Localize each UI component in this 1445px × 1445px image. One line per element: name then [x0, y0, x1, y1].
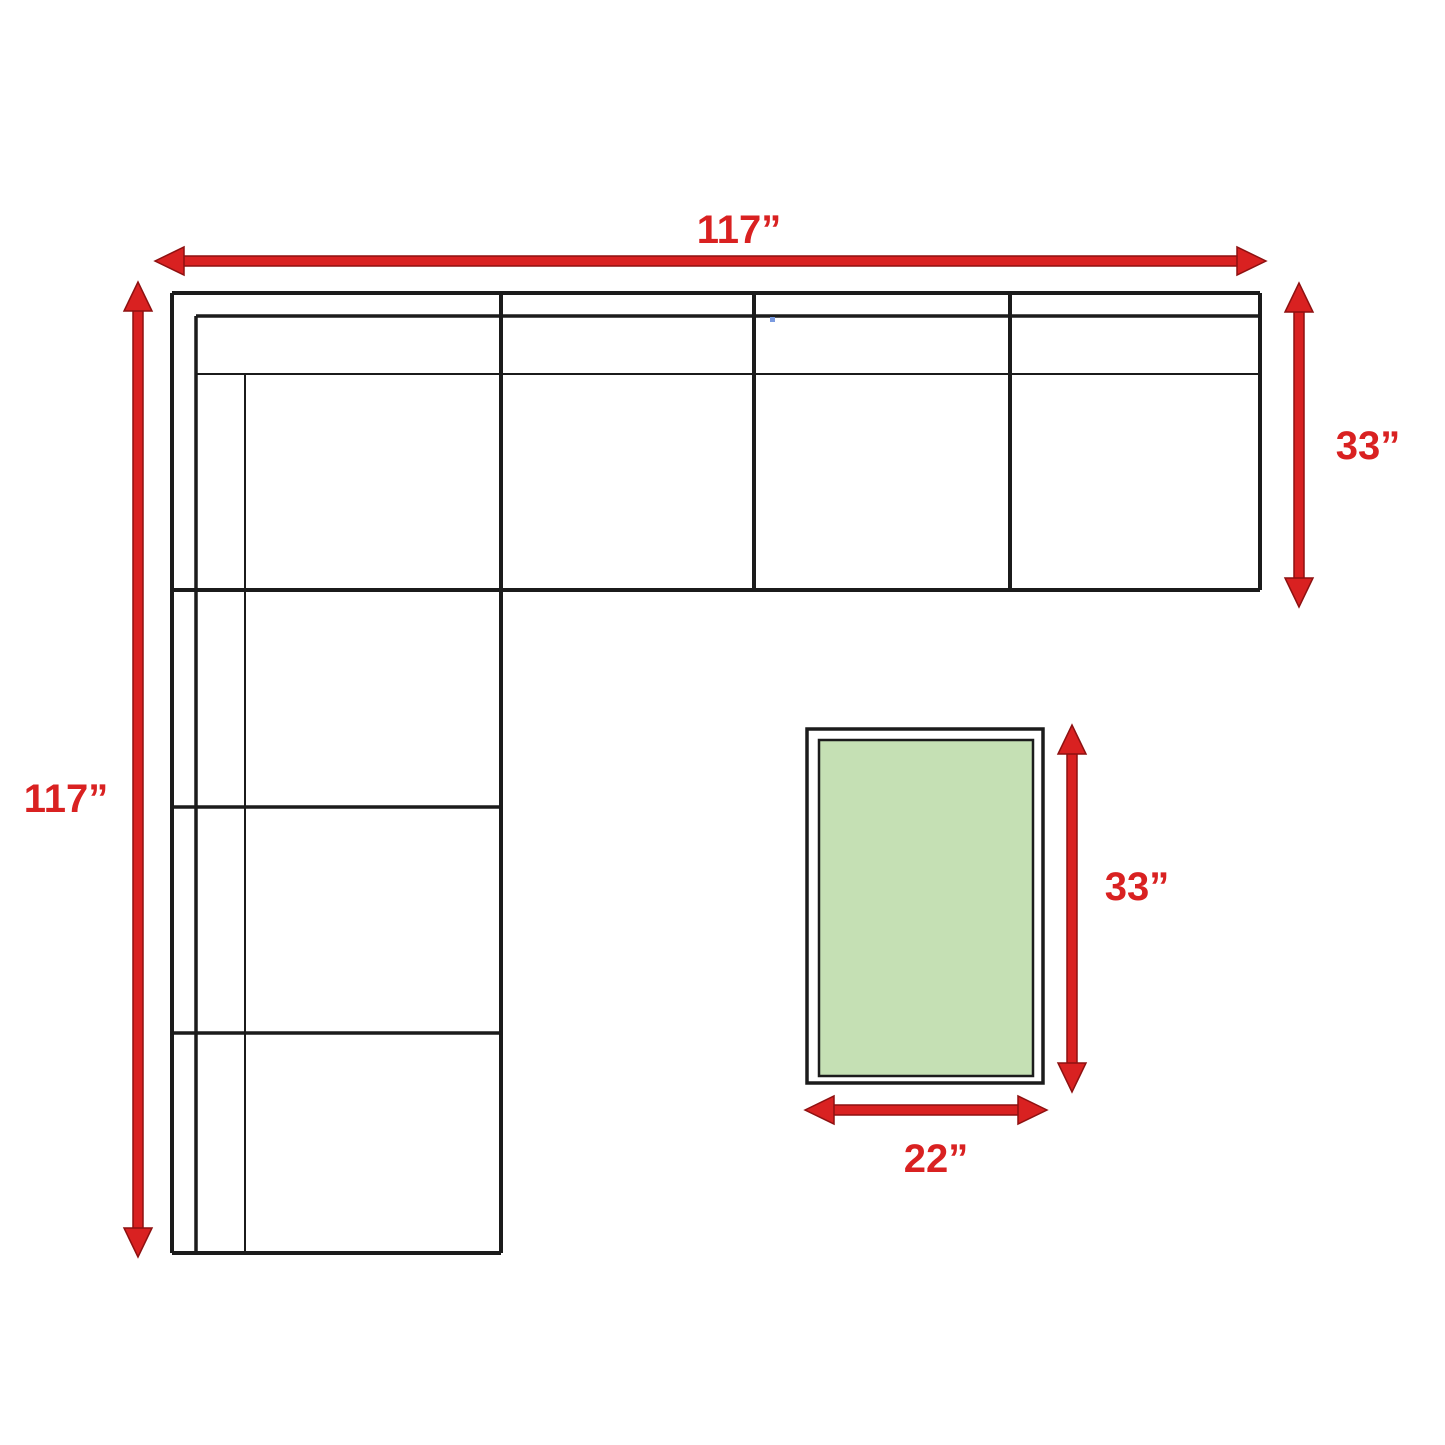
total-width-arrow-head-right [1237, 247, 1266, 275]
ottoman-width-arrow-head-left [805, 1096, 834, 1124]
blue-artifact-dot [770, 317, 775, 322]
dim-arrow-ottoman-width [805, 1096, 1047, 1124]
ottoman [807, 729, 1043, 1083]
ottoman-cushion [819, 740, 1033, 1076]
total-depth-arrow-shaft [133, 308, 143, 1231]
dim-arrow-total-depth [124, 282, 152, 1257]
label-total-depth: 117” [24, 777, 109, 821]
total-width-arrow-head-left [155, 247, 184, 275]
sofa-dimension-diagram: 117” 117” 33” 33” 22” [0, 0, 1445, 1445]
ottoman-length-arrow-head-top [1058, 725, 1086, 754]
section-depth-arrow-head-top [1285, 283, 1313, 312]
ottoman-width-arrow-head-right [1018, 1096, 1047, 1124]
label-section-depth: 33” [1336, 424, 1401, 468]
total-depth-arrow-head-bottom [124, 1228, 152, 1257]
label-total-width: 117” [697, 208, 782, 252]
ottoman-width-arrow-shaft [831, 1105, 1021, 1115]
section-depth-arrow-shaft [1294, 309, 1304, 581]
label-ottoman-width: 22” [904, 1137, 969, 1181]
total-width-arrow-shaft [182, 256, 1239, 266]
section-depth-arrow-head-bottom [1285, 578, 1313, 607]
label-ottoman-length: 33” [1105, 865, 1170, 909]
sectional-outline [172, 293, 1260, 1253]
total-depth-arrow-head-top [124, 282, 152, 311]
ottoman-length-arrow-head-bottom [1058, 1063, 1086, 1092]
dim-arrow-ottoman-length [1058, 725, 1086, 1092]
dim-arrow-section-depth [1285, 283, 1313, 607]
diagram-svg: 117” 117” 33” 33” 22” [0, 0, 1445, 1445]
ottoman-length-arrow-shaft [1067, 751, 1077, 1066]
